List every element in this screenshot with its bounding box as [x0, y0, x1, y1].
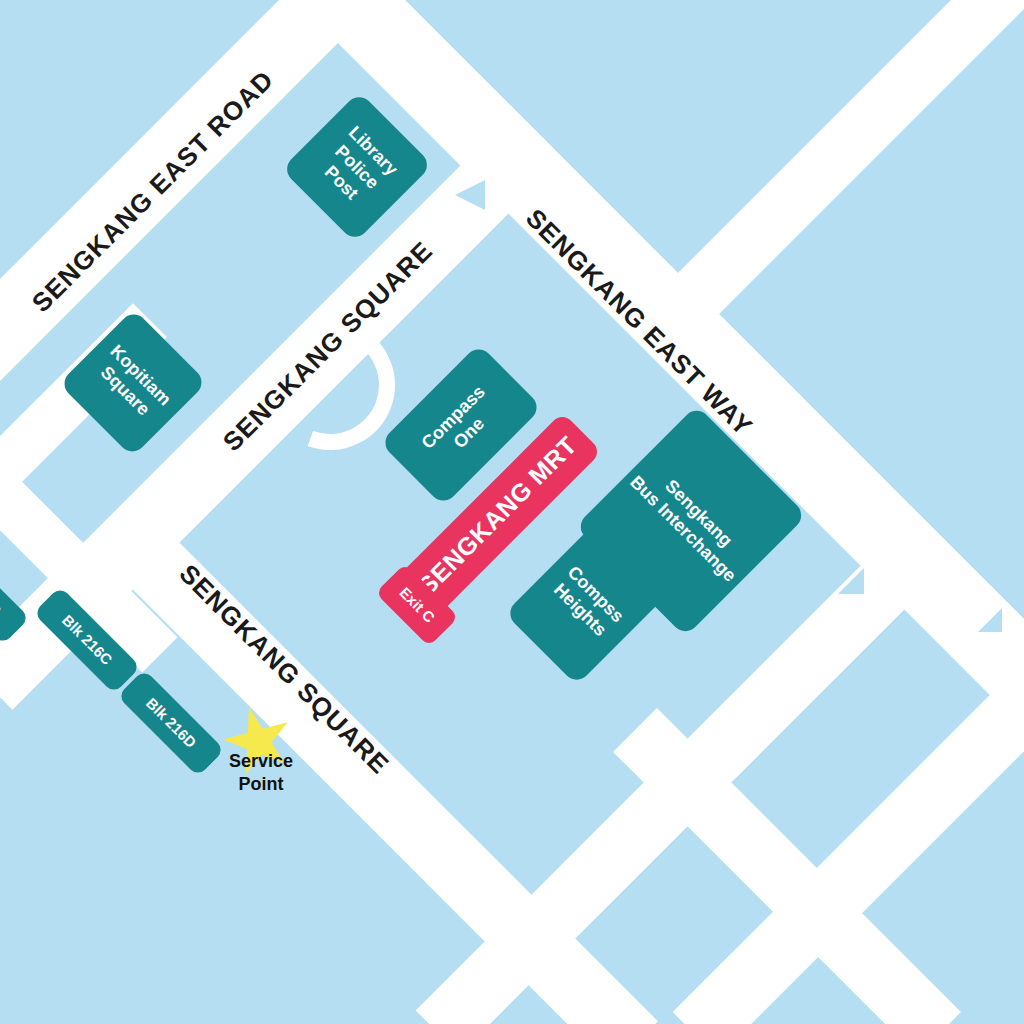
road-sengkang-east-way: [323, 0, 1024, 777]
service-point-label: Service Point: [201, 750, 321, 797]
building-label: Library Police Post: [312, 122, 403, 213]
building-label: Kopitiam Square: [90, 340, 176, 426]
road-label-sengkang-east-road: SENGKANG EAST ROAD: [1, 39, 306, 344]
building-kopitiam-square: Kopitiam Square: [59, 309, 207, 457]
road-northeast-unnamed: [648, 0, 1024, 344]
road-merge-notch: [838, 568, 864, 594]
road-merge-notch: [926, 660, 952, 686]
building-label: Compass One: [416, 380, 505, 469]
building-label: Blk 216D: [142, 694, 200, 752]
exit-label: Exit C: [395, 583, 438, 626]
building-label: Compss Heights: [547, 561, 629, 643]
map-canvas: SENGKANG EAST ROAD SENGKANG SQUARE SENGK…: [0, 0, 1024, 1024]
building-label: Sengkang Bus Interchange: [625, 455, 757, 587]
building-label: Blk 216B: [0, 562, 5, 620]
